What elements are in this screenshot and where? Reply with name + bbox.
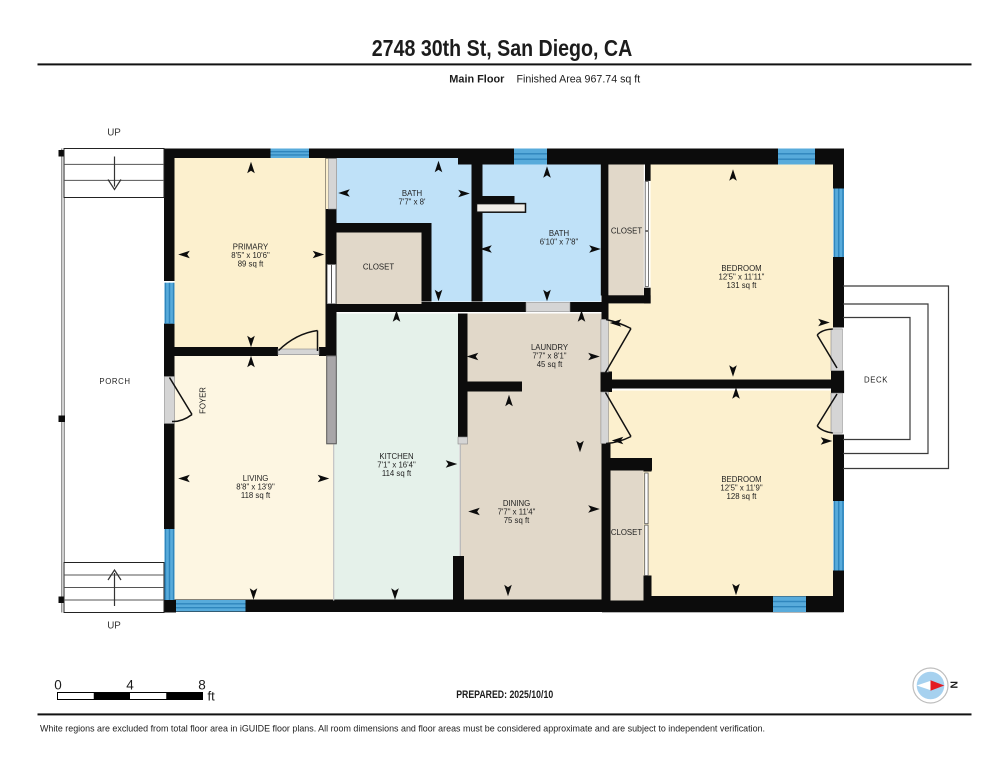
svg-text:CLOSET: CLOSET	[363, 263, 394, 272]
svg-text:131 sq ft: 131 sq ft	[727, 281, 758, 290]
svg-text:2748 30th St, San Diego, CA: 2748 30th St, San Diego, CA	[372, 35, 633, 61]
svg-text:0: 0	[54, 678, 62, 693]
svg-text:128 sq ft: 128 sq ft	[727, 492, 758, 501]
svg-text:8: 8	[198, 678, 206, 693]
svg-text:DECK: DECK	[864, 376, 888, 385]
svg-text:Main Floor: Main Floor	[449, 73, 505, 85]
svg-text:PORCH: PORCH	[99, 377, 130, 386]
svg-text:FOYER: FOYER	[199, 387, 208, 414]
svg-text:Finished Area 967.74 sq ft: Finished Area 967.74 sq ft	[517, 73, 641, 85]
svg-text:118 sq ft: 118 sq ft	[241, 491, 271, 500]
svg-text:6'10" x 7'8": 6'10" x 7'8"	[540, 238, 579, 247]
svg-text:114 sq ft: 114 sq ft	[382, 469, 412, 478]
svg-text:UP: UP	[107, 128, 121, 139]
svg-text:N: N	[948, 681, 960, 689]
svg-text:45 sq ft: 45 sq ft	[537, 360, 563, 369]
svg-text:4: 4	[126, 678, 134, 693]
svg-text:7'7" x 8': 7'7" x 8'	[399, 198, 426, 207]
svg-text:UP: UP	[107, 621, 121, 632]
svg-text:ft: ft	[208, 689, 216, 704]
svg-text:CLOSET: CLOSET	[611, 528, 642, 537]
svg-text:89 sq ft: 89 sq ft	[238, 260, 264, 269]
svg-text:PREPARED: 2025/10/10: PREPARED: 2025/10/10	[456, 689, 553, 701]
svg-text:75 sq ft: 75 sq ft	[504, 516, 530, 525]
svg-text:CLOSET: CLOSET	[611, 227, 642, 236]
svg-text:White regions are excluded fro: White regions are excluded from total fl…	[40, 724, 765, 735]
